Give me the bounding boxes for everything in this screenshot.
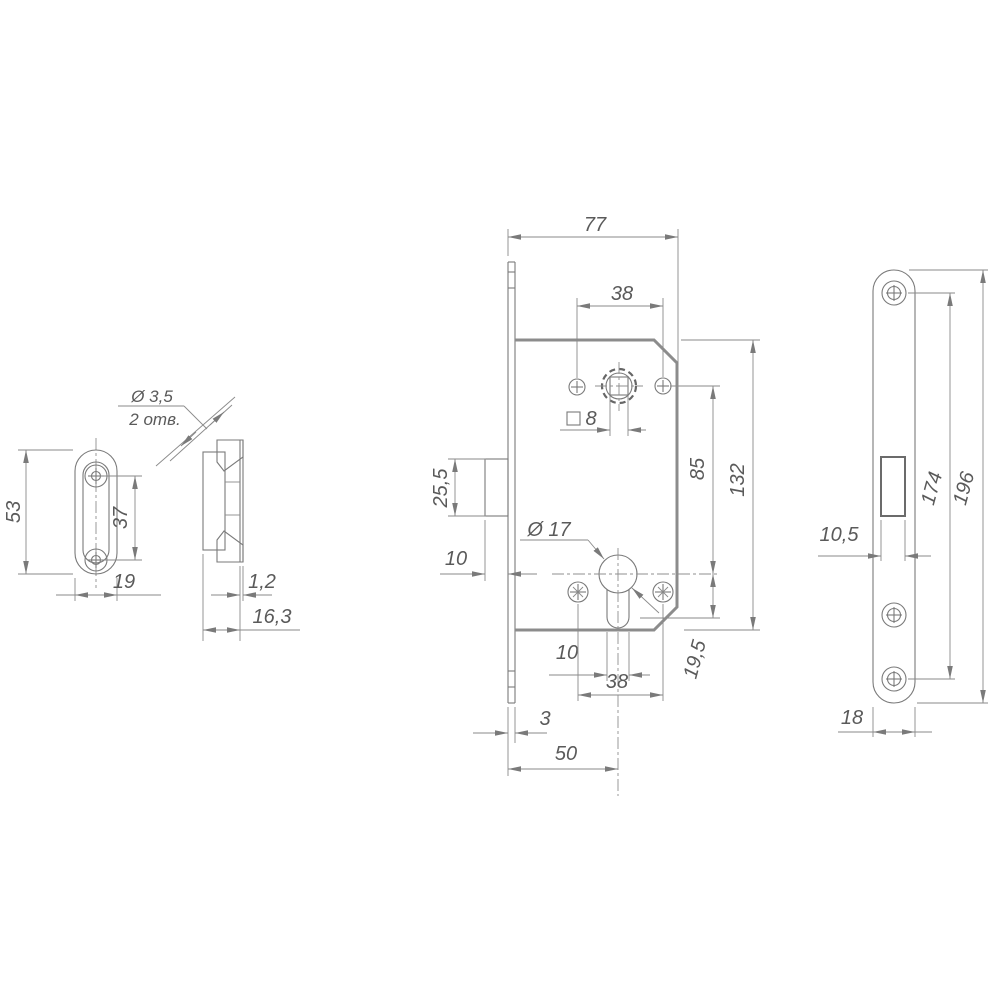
dim-strike-width: 19 xyxy=(113,571,135,593)
lock-body-view: 8 Ø 17 xyxy=(430,214,760,796)
dim-latch-protrusion: 10 xyxy=(445,548,467,570)
screw-boss xyxy=(568,582,588,602)
callout-qty: 2 отв. xyxy=(128,410,180,429)
dim-top-holes: 38 xyxy=(611,283,633,305)
dim-faceplate-thickness: 3 xyxy=(539,708,550,730)
dim-body-height: 132 xyxy=(727,463,749,496)
dim-faceplate-width: 18 xyxy=(841,707,863,729)
section-bottom-flange xyxy=(217,531,243,562)
dim-latch-height: 25,5 xyxy=(430,468,452,509)
dim-stem-width: 10 xyxy=(556,642,578,664)
cylinder-callout: Ø 17 xyxy=(526,519,571,541)
dim-section-thickness: 1,2 xyxy=(248,571,276,593)
screw-boss xyxy=(653,582,673,602)
faceplate-screw-hole xyxy=(882,667,906,691)
faceplate-front-view: 10,5 174 196 18 xyxy=(818,270,988,737)
dim-backset: 50 xyxy=(555,743,577,765)
dim-spindle-to-cylinder: 85 xyxy=(687,457,709,480)
square-symbol xyxy=(567,412,580,425)
diameter-arrow xyxy=(632,588,659,613)
callout-diameter: Ø 3,5 xyxy=(130,387,173,406)
strike-plate-front-view: 53 37 19 xyxy=(3,438,161,601)
dim-section-depth: 16,3 xyxy=(253,606,292,628)
latch-bolt xyxy=(485,459,508,516)
callout-leader xyxy=(156,397,235,466)
latch-cutout xyxy=(881,457,905,516)
faceplate-screw-hole xyxy=(882,603,906,627)
lock-body-outline xyxy=(515,340,677,630)
callout-leader xyxy=(184,406,207,429)
section-top-flange xyxy=(217,440,243,471)
faceplate-outline xyxy=(873,270,915,703)
dim-square: 8 xyxy=(585,408,596,430)
dim-faceplate-height: 196 xyxy=(949,469,979,508)
dim-strike-height: 53 xyxy=(3,501,25,523)
dim-body-width: 77 xyxy=(584,214,607,236)
lock-technical-drawing: 53 37 19 Ø 3,5 2 отв. 1,2 xyxy=(0,0,1000,1000)
dim-cutout-width: 10,5 xyxy=(820,524,860,546)
dim-screw-spacing: 174 xyxy=(917,469,947,507)
section-body-hatched xyxy=(203,452,225,550)
dim-bottom-holes: 38 xyxy=(606,671,628,693)
faceplate-screw-hole xyxy=(882,281,906,305)
drawing-page: 53 37 19 Ø 3,5 2 отв. 1,2 xyxy=(0,0,1000,1000)
callout-arrow xyxy=(210,412,224,425)
strike-plate-section-view: Ø 3,5 2 отв. 1,2 16,3 xyxy=(118,387,300,641)
dim-cylinder-tail: 19,5 xyxy=(680,637,712,681)
callout-leader xyxy=(588,540,604,559)
dim-strike-hole-spacing: 37 xyxy=(110,506,132,529)
